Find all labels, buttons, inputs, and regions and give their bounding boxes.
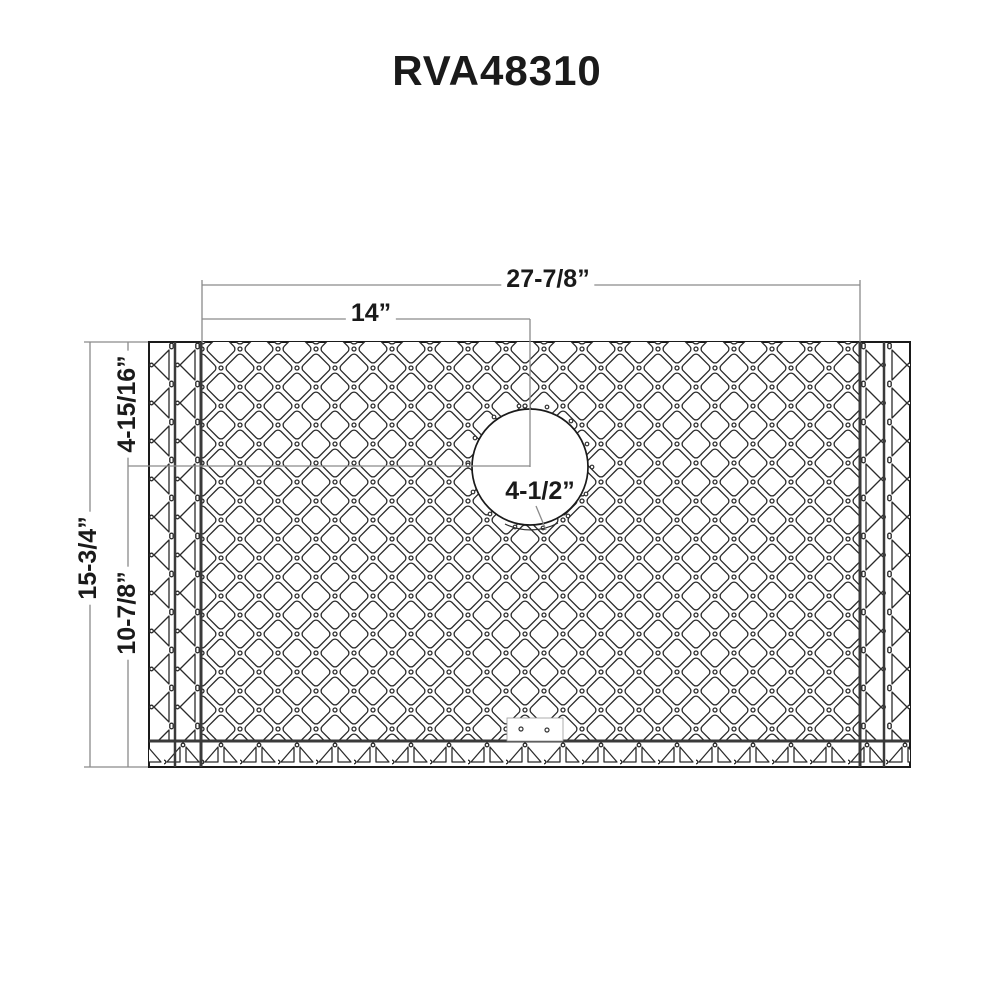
dim-label-hole-diameter: 4-1/2” (500, 478, 579, 504)
drawing-title: RVA48310 (392, 47, 602, 95)
left-wing-strip-outer (149, 342, 175, 741)
right-wing-strip-outer (884, 342, 910, 741)
dim-label-overall-height: 15-3/4” (75, 511, 101, 604)
dim-label-hole-from-bottom: 10-7/8” (114, 566, 140, 659)
bottom-band (149, 741, 910, 767)
right-wing-strip-inner (860, 342, 884, 741)
dim-label-hole-from-top: 4-15/16” (114, 350, 140, 457)
drawing-canvas: RVA48310 27-7/8” 14” 4-15/16” 15-3/4” 10… (0, 0, 1000, 1000)
mounting-plate (507, 718, 563, 741)
dim-label-overall-width: 27-7/8” (501, 266, 594, 292)
left-wing-strip-inner (175, 342, 201, 741)
dim-label-hole-from-left: 14” (346, 300, 396, 326)
